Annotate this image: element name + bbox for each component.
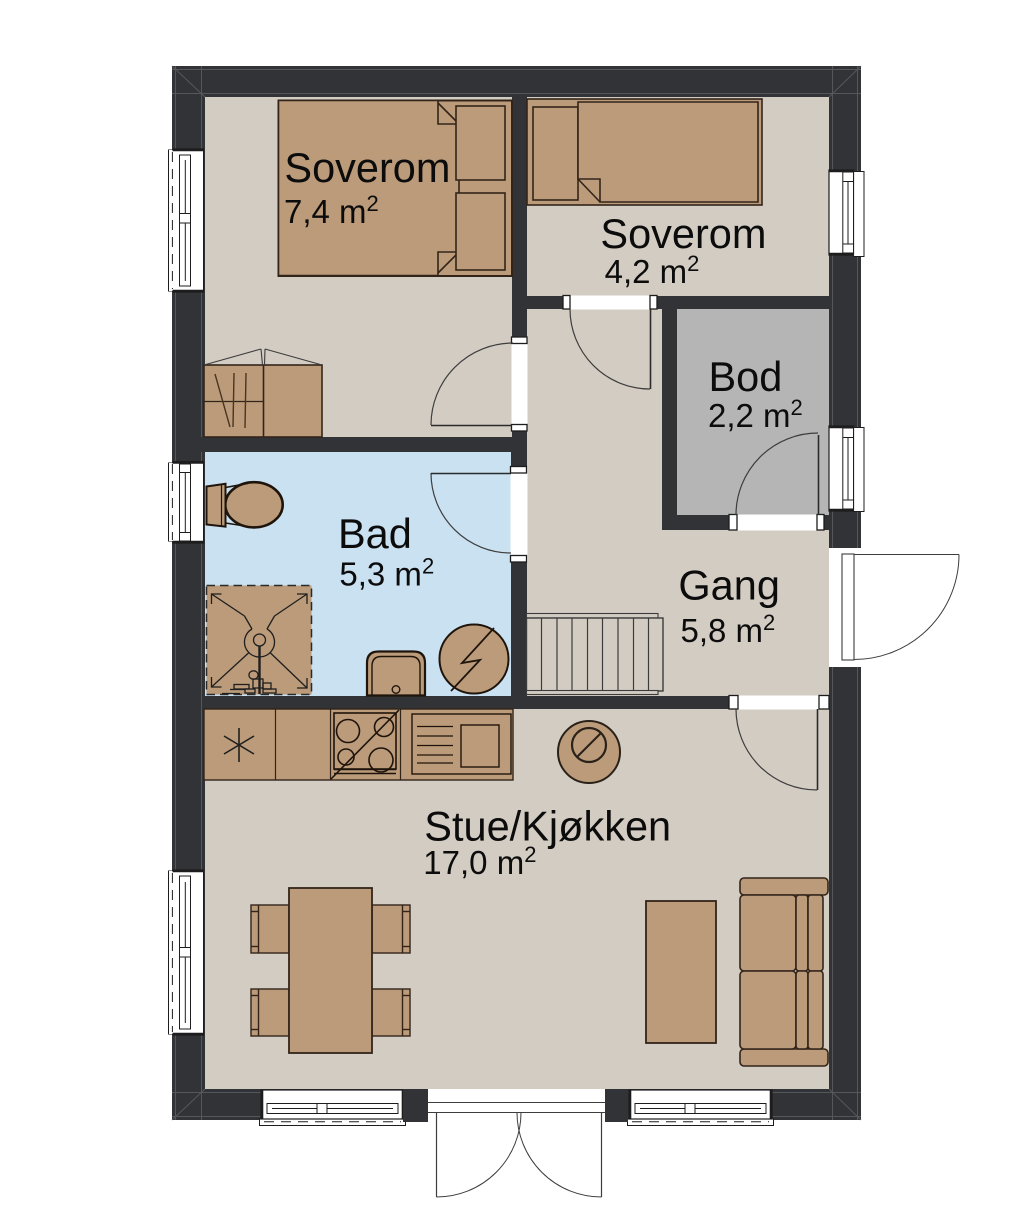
- svg-text:Soverom: Soverom: [600, 210, 766, 257]
- svg-text:4,2 m2: 4,2 m2: [605, 251, 700, 290]
- svg-text:Bod: Bod: [709, 353, 783, 400]
- svg-text:7,4 m2: 7,4 m2: [284, 191, 379, 230]
- svg-text:Bad: Bad: [338, 510, 412, 557]
- svg-text:17,0 m2: 17,0 m2: [423, 842, 536, 881]
- svg-text:5,8 m2: 5,8 m2: [681, 610, 776, 649]
- svg-text:Stue/Kjøkken: Stue/Kjøkken: [424, 803, 671, 850]
- svg-text:2,2 m2: 2,2 m2: [708, 395, 803, 434]
- svg-text:Soverom: Soverom: [284, 144, 450, 191]
- svg-text:5,3 m2: 5,3 m2: [339, 554, 434, 593]
- svg-text:Gang: Gang: [678, 562, 780, 609]
